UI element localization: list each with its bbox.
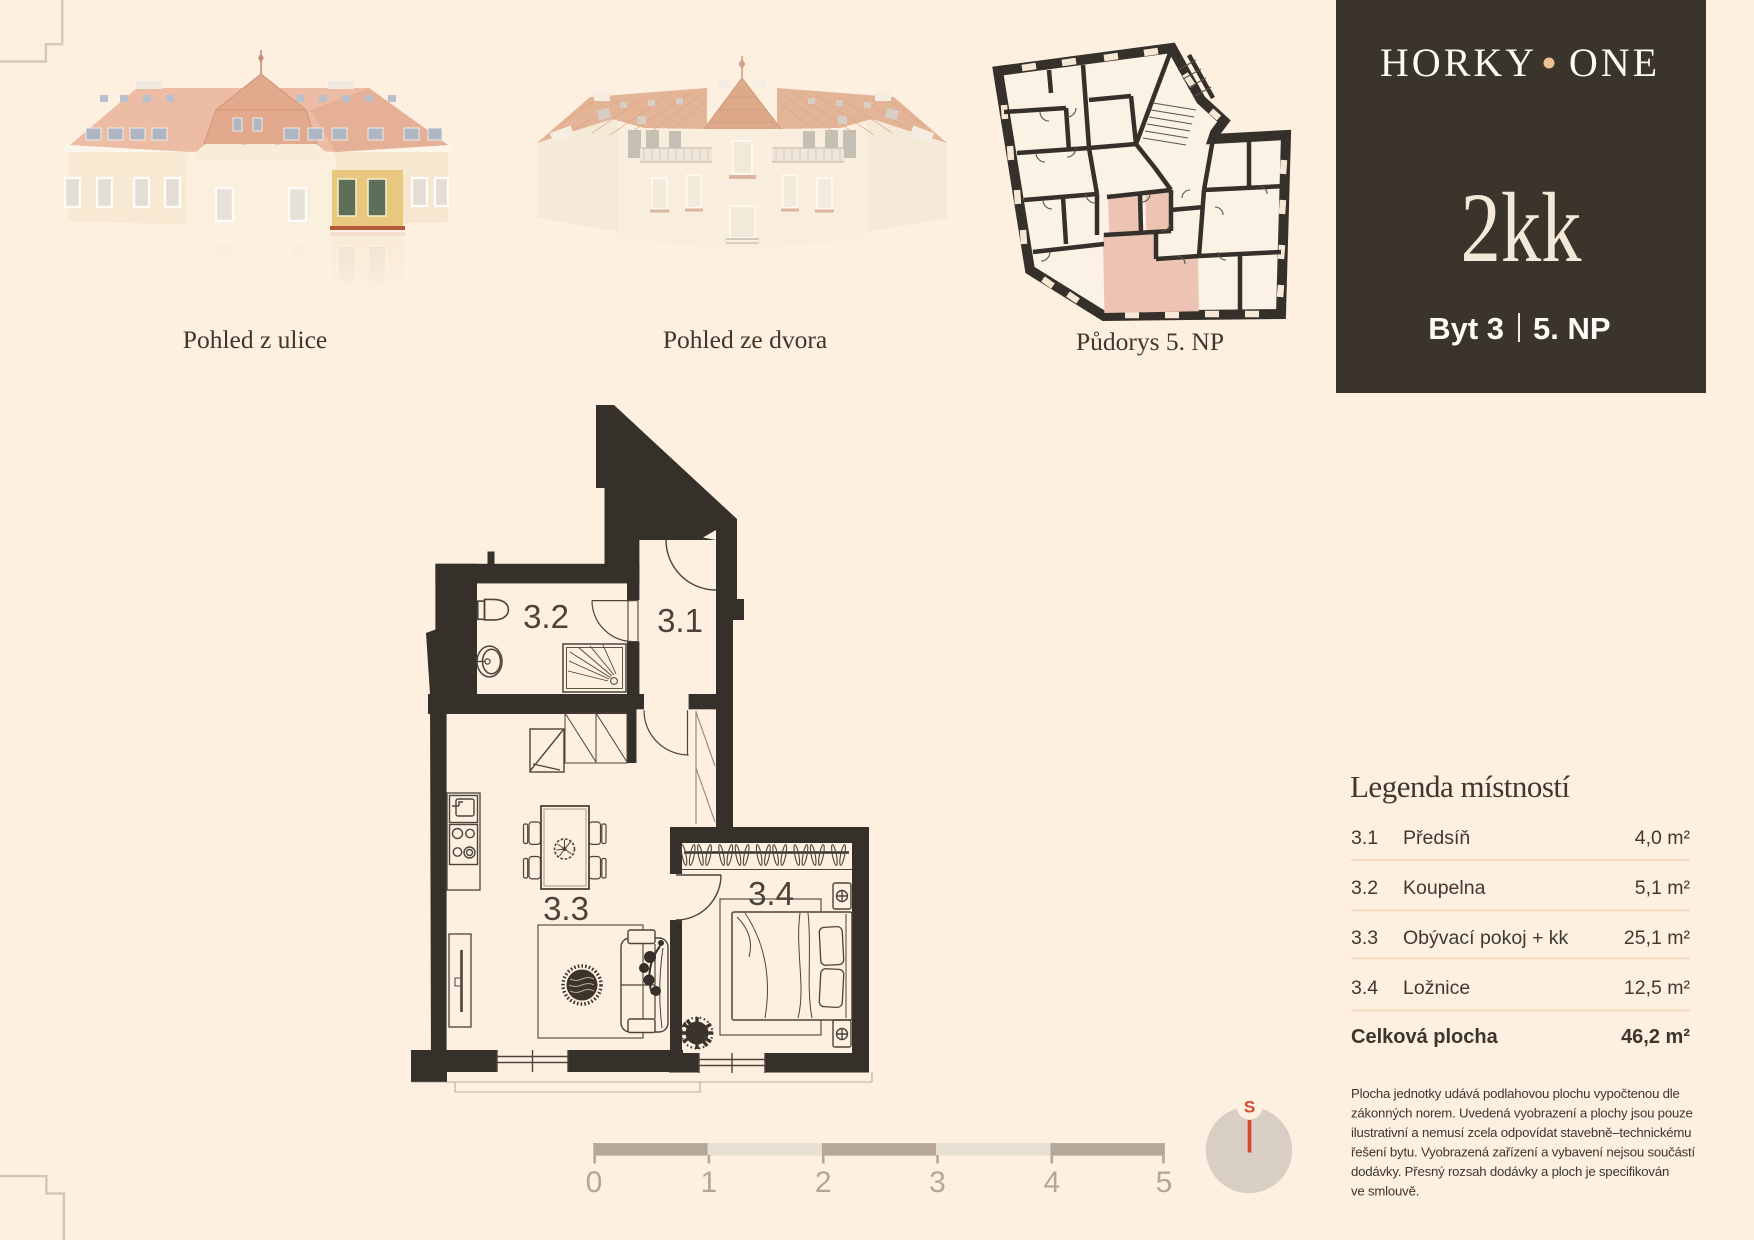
svg-text:3.3: 3.3 (543, 890, 589, 927)
svg-text:3: 3 (929, 1166, 946, 1199)
svg-text:S: S (1244, 1098, 1255, 1117)
svg-text:2: 2 (815, 1166, 832, 1199)
svg-text:Celková plocha: Celková plocha (1351, 1026, 1499, 1048)
svg-text:4: 4 (1043, 1166, 1060, 1199)
svg-text:Plocha jednotky udává podlahov: Plocha jednotky udává podlahovou plochu … (1351, 1086, 1680, 1101)
svg-text:HORKY ONE: HORKY ONE (1380, 40, 1660, 85)
svg-text:Koupelna: Koupelna (1403, 877, 1486, 899)
svg-text:3.1: 3.1 (657, 602, 703, 639)
svg-text:řešení bytu. Vyobrazená zaříze: řešení bytu. Vyobrazená zařízení a vybav… (1351, 1145, 1696, 1160)
svg-text:0: 0 (586, 1166, 603, 1199)
svg-text:Ložnice: Ložnice (1403, 977, 1470, 999)
svg-text:3.2: 3.2 (523, 598, 569, 635)
svg-text:2kk: 2kk (1461, 172, 1582, 283)
svg-text:4,0 m²: 4,0 m² (1635, 827, 1691, 849)
svg-text:Byt 3: Byt 3 (1428, 311, 1504, 346)
svg-text:12,5 m²: 12,5 m² (1624, 977, 1691, 999)
svg-text:Obývací pokoj + kk: Obývací pokoj + kk (1403, 927, 1569, 949)
svg-text:ve smlouvě.: ve smlouvě. (1351, 1184, 1419, 1199)
svg-text:3.2: 3.2 (1351, 877, 1378, 899)
svg-text:5,1 m²: 5,1 m² (1635, 877, 1691, 899)
svg-text:25,1 m²: 25,1 m² (1624, 927, 1691, 949)
svg-text:3.1: 3.1 (1351, 827, 1378, 849)
svg-text:Pohled z ulice: Pohled z ulice (183, 325, 327, 354)
svg-text:3.3: 3.3 (1351, 927, 1378, 949)
svg-text:Pohled ze dvora: Pohled ze dvora (663, 325, 827, 354)
svg-text:Předsíň: Předsíň (1403, 827, 1470, 849)
svg-text:dodávky. Přesný rozsah dodávky: dodávky. Přesný rozsah dodávky a ploch j… (1351, 1164, 1669, 1179)
svg-text:zákonných norem. Uvedená vyobr: zákonných norem. Uvedená vyobrazení a pl… (1351, 1106, 1693, 1121)
svg-text:3.4: 3.4 (1351, 977, 1378, 999)
svg-text:Legenda místností: Legenda místností (1350, 769, 1571, 804)
svg-text:46,2 m²: 46,2 m² (1621, 1026, 1690, 1048)
svg-text:1: 1 (701, 1166, 718, 1199)
svg-text:3.4: 3.4 (748, 875, 794, 912)
svg-text:5. NP: 5. NP (1533, 311, 1611, 346)
svg-text:5: 5 (1156, 1166, 1173, 1199)
svg-text:ilustrativní a nemusí zcela od: ilustrativní a nemusí zcela odpovídat st… (1351, 1125, 1691, 1140)
svg-text:Půdorys 5. NP: Půdorys 5. NP (1076, 327, 1224, 356)
